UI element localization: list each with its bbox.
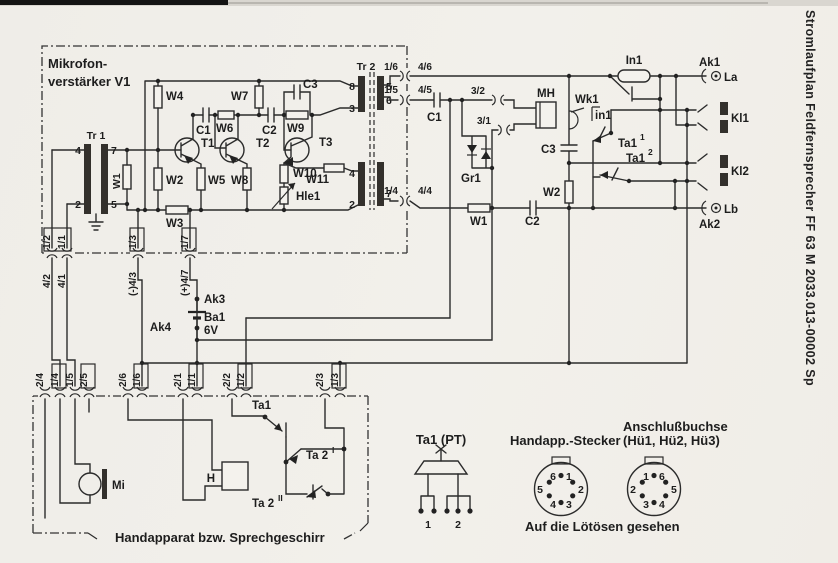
tr1-terminal-2: 2	[75, 199, 81, 211]
connector-1-1b: 1/1	[187, 373, 198, 387]
jack-kl1-label: Kl1	[731, 113, 750, 125]
capacitor-c1-amp-label: C1	[196, 125, 211, 137]
module-title-line2: verstärker V1	[48, 74, 130, 89]
side-title: Stromlaufplan Feldfernsprecher FF 63 M 2…	[803, 10, 817, 386]
plug-pin-5: 5	[537, 484, 543, 496]
pt-switch-figure: Ta1 (PT) 1 2	[415, 432, 473, 531]
capacitor-c2-amp-label: C2	[262, 125, 277, 137]
socket-pin-3: 3	[643, 499, 649, 511]
scan-edge-artifacts	[0, 0, 838, 6]
resistor-w4-label: W4	[166, 91, 184, 103]
pt-pin-2: 2	[455, 519, 461, 531]
receiver-mh-label: MH	[537, 88, 555, 100]
socket-pin-6: 6	[659, 471, 665, 483]
resistor-w3-label: W3	[166, 218, 183, 230]
capacitor-c2-label: C2	[525, 216, 540, 228]
pt-pin-1: 1	[425, 519, 431, 531]
jack-kl2-label: Kl2	[731, 166, 749, 178]
module-edge-connectors-bottom: 1/2 1/1 1/3 1/7 4/2 4/1 (-)4/3 (+)4/7	[42, 228, 196, 296]
contact-ta1-1-sup: 1	[640, 132, 645, 142]
plug-pin-6: 6	[550, 471, 556, 483]
resistor-w7-label: W7	[231, 91, 248, 103]
socket-pin-1: 1	[643, 471, 649, 483]
connector-4-6: 4/6	[418, 62, 432, 73]
scanned-schematic-page: Mikrofon- verstärker V1 Tr 1 4 7 2 5 W1 …	[0, 0, 838, 563]
switch-in1-label: in1	[595, 110, 612, 122]
capacitor-c1-label: C1	[427, 112, 442, 124]
plug-pin-1: 1	[566, 471, 572, 483]
connector-3-1: 3/1	[477, 116, 491, 127]
connector-1-4b: 1/4	[50, 373, 61, 387]
tr1-terminal-4: 4	[75, 145, 81, 157]
connector-1-2b: 1/2	[236, 373, 247, 387]
connector-2-3: 2/3	[315, 373, 326, 387]
capacitor-c3-amp-label: C3	[303, 79, 318, 91]
resistor-w1-amp-label: W1	[111, 173, 123, 189]
bottom-connector-row: 2/4 1/4 1/5 2/5 2/6 1/6 2/1 1/1 2/2 1/2 …	[35, 364, 346, 397]
drawing-number-title: Stromlaufplan Feldfernsprecher FF 63 M 2…	[803, 10, 817, 386]
battery-ba1-label: Ba1	[204, 312, 226, 324]
switch-ta2-I-sup: I	[332, 445, 334, 455]
potentiometer-hle1-label: Hle1	[296, 191, 321, 203]
connector-4-4: 4/4	[418, 186, 432, 197]
resistor-w5-label: W5	[208, 175, 226, 187]
switch-ta1-label: Ta1	[252, 400, 272, 412]
anti-sidetone-section: C1 3/2 3/1 MH Gr1 W1 C2 C3 W2 Wk1 in1	[410, 76, 706, 363]
resistor-w2-label: W2	[166, 175, 183, 187]
connector-2-1: 2/1	[173, 373, 184, 387]
plug-title: Handapp.-Stecker	[510, 433, 621, 448]
resistor-w11-label: W11	[306, 174, 330, 186]
transistor-t3-label: T3	[319, 137, 332, 149]
transformer-tr1: Tr 1 4 7 2 5 W1	[52, 130, 131, 230]
earpiece-h-label: H	[207, 473, 215, 485]
contact-ta1-1-label: Ta1	[618, 138, 638, 150]
handset-box: Mi H Ta1 Ta 2 I Ta 2 II Handapparat bzw.…	[33, 396, 368, 545]
schematic-canvas: Mikrofon- verstärker V1 Tr 1 4 7 2 5 W1 …	[0, 0, 838, 563]
terminal-lb-label: Lb	[724, 204, 738, 216]
battery-ak4-label: Ak4	[150, 322, 172, 334]
switch-ta2-II-label: Ta 2	[252, 498, 274, 510]
module-title-line1: Mikrofon-	[48, 56, 107, 71]
tr2-terminal-8: 8	[349, 81, 355, 93]
transistor-t1-label: T1	[201, 138, 215, 150]
connector-2-4: 2/4	[35, 373, 46, 387]
resistor-w9-label: W9	[287, 123, 304, 135]
microphone-mi-label: Mi	[112, 480, 125, 492]
terminal-ak1-label: Ak1	[699, 57, 721, 69]
ground-icon	[89, 214, 103, 230]
connector-1-4: 1/4	[384, 186, 398, 197]
interconnect-wires	[52, 100, 687, 386]
socket-pin-2: 2	[630, 484, 636, 496]
plug-figure: Handapp.-Stecker 6 1 2 3 4 5	[510, 433, 621, 516]
connector-1-5b: 1/5	[65, 373, 76, 387]
tr2-terminal-4: 4	[349, 168, 355, 180]
tr2-terminal-3: 3	[349, 103, 355, 115]
socket-title-line2: (Hü1, Hü2, Hü3)	[623, 433, 720, 448]
connector-2-5: 2/5	[79, 373, 90, 387]
tr2-terminal-2: 2	[349, 199, 355, 211]
connector-1-6: 1/6	[384, 62, 398, 73]
tr1-terminal-7: 7	[111, 145, 117, 157]
connector-2-2: 2/2	[222, 373, 233, 387]
battery-voltage: 6V	[204, 325, 218, 337]
connector-3-2: 3/2	[471, 86, 485, 97]
handset-caption: Handapparat bzw. Sprechgeschirr	[115, 530, 325, 545]
contact-ta1-2-sup: 2	[648, 147, 653, 157]
resistor-w8-label: W8	[231, 175, 249, 187]
battery-ak3-label: Ak3	[204, 294, 225, 306]
plug-pin-4: 4	[550, 499, 556, 511]
connector-2-6: 2/6	[118, 373, 129, 387]
transistor-t2-label: T2	[256, 138, 269, 150]
connector-1-3b: 1/3	[330, 373, 341, 387]
resistor-w6-label: W6	[216, 123, 233, 135]
switch-ta2-II-sup: II	[278, 493, 283, 503]
amplifier-v1-circuit: W3 W4 W2 T1 C1 W6 C2 T2 W5 W8 W7	[125, 79, 358, 230]
tr2-label: Tr 2	[357, 61, 376, 73]
tr1-terminal-5: 5	[111, 199, 117, 211]
tr1-label: Tr 1	[87, 130, 106, 142]
capacitor-c3-label: C3	[541, 144, 556, 156]
solder-side-caption: Auf die Lötösen gesehen	[525, 519, 680, 534]
resistor-w1-label: W1	[470, 216, 488, 228]
rectifier-gr1-label: Gr1	[461, 173, 481, 185]
lamp-in1-label: In1	[626, 55, 643, 67]
plug-pin-3: 3	[566, 499, 572, 511]
ringer-wk1-label: Wk1	[575, 94, 599, 106]
terminal-la-label: La	[724, 72, 738, 84]
socket-pin-4: 4	[659, 499, 665, 511]
terminal-ak2-label: Ak2	[699, 219, 720, 231]
resistor-w2r-label: W2	[543, 187, 560, 199]
socket-title-line1: Anschlußbuchse	[623, 419, 728, 434]
pt-switch-title: Ta1 (PT)	[416, 432, 466, 447]
connector-4-5: 4/5	[418, 85, 432, 96]
connector-1-6b: 1/6	[132, 373, 143, 387]
socket-pin-5: 5	[671, 484, 677, 496]
plug-pin-2: 2	[578, 484, 584, 496]
switch-ta2-I-label: Ta 2	[306, 450, 328, 462]
connector-1-5: 1/5	[384, 85, 398, 96]
